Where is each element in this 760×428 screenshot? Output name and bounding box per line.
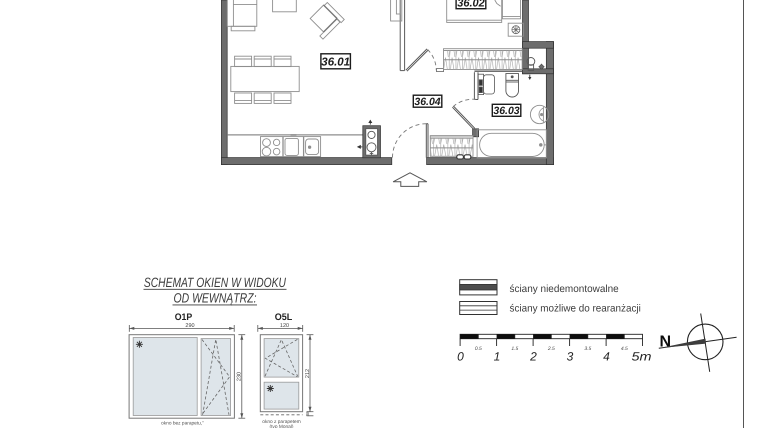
svg-text:2: 2 [529,350,537,364]
svg-text:O5L: O5L [275,312,293,323]
svg-text:okno z parapetem: okno z parapetem [262,419,300,425]
svg-text:36.04: 36.04 [414,96,440,108]
svg-text:36.03: 36.03 [493,105,519,117]
svg-text:SCHEMAT OKIEN W WIDOKU: SCHEMAT OKIEN W WIDOKU [144,275,286,290]
svg-text:0: 0 [457,350,464,364]
svg-text:290: 290 [185,323,194,329]
svg-text:ściany niedemontowalne: ściany niedemontowalne [510,284,619,295]
svg-text:36.02: 36.02 [457,0,485,10]
svg-text:38: 38 [305,411,310,416]
svg-text:3: 3 [567,350,574,364]
svg-text:(typ Monal): (typ Monal) [270,424,294,428]
svg-text:4: 4 [603,350,610,364]
svg-text:230: 230 [237,372,243,381]
svg-text:120: 120 [280,323,289,329]
svg-text:0.5: 0.5 [475,346,482,352]
svg-text:ściany możliwe do rearanżacji: ściany możliwe do rearanżacji [510,304,641,315]
svg-text:3.5: 3.5 [584,346,591,352]
svg-text:O1P: O1P [175,312,193,323]
svg-text:4.5: 4.5 [621,346,628,352]
svg-text:2.5: 2.5 [547,346,555,352]
svg-text:36.01: 36.01 [321,57,350,69]
svg-text:okno bez parapetu,": okno bez parapetu," [161,420,204,426]
svg-text:1: 1 [494,350,501,364]
svg-text:5m: 5m [632,350,652,364]
svg-text:1.5: 1.5 [511,346,518,352]
svg-text:212: 212 [305,369,311,378]
svg-text:OD WEWNĄTRZ:: OD WEWNĄTRZ: [174,290,257,305]
